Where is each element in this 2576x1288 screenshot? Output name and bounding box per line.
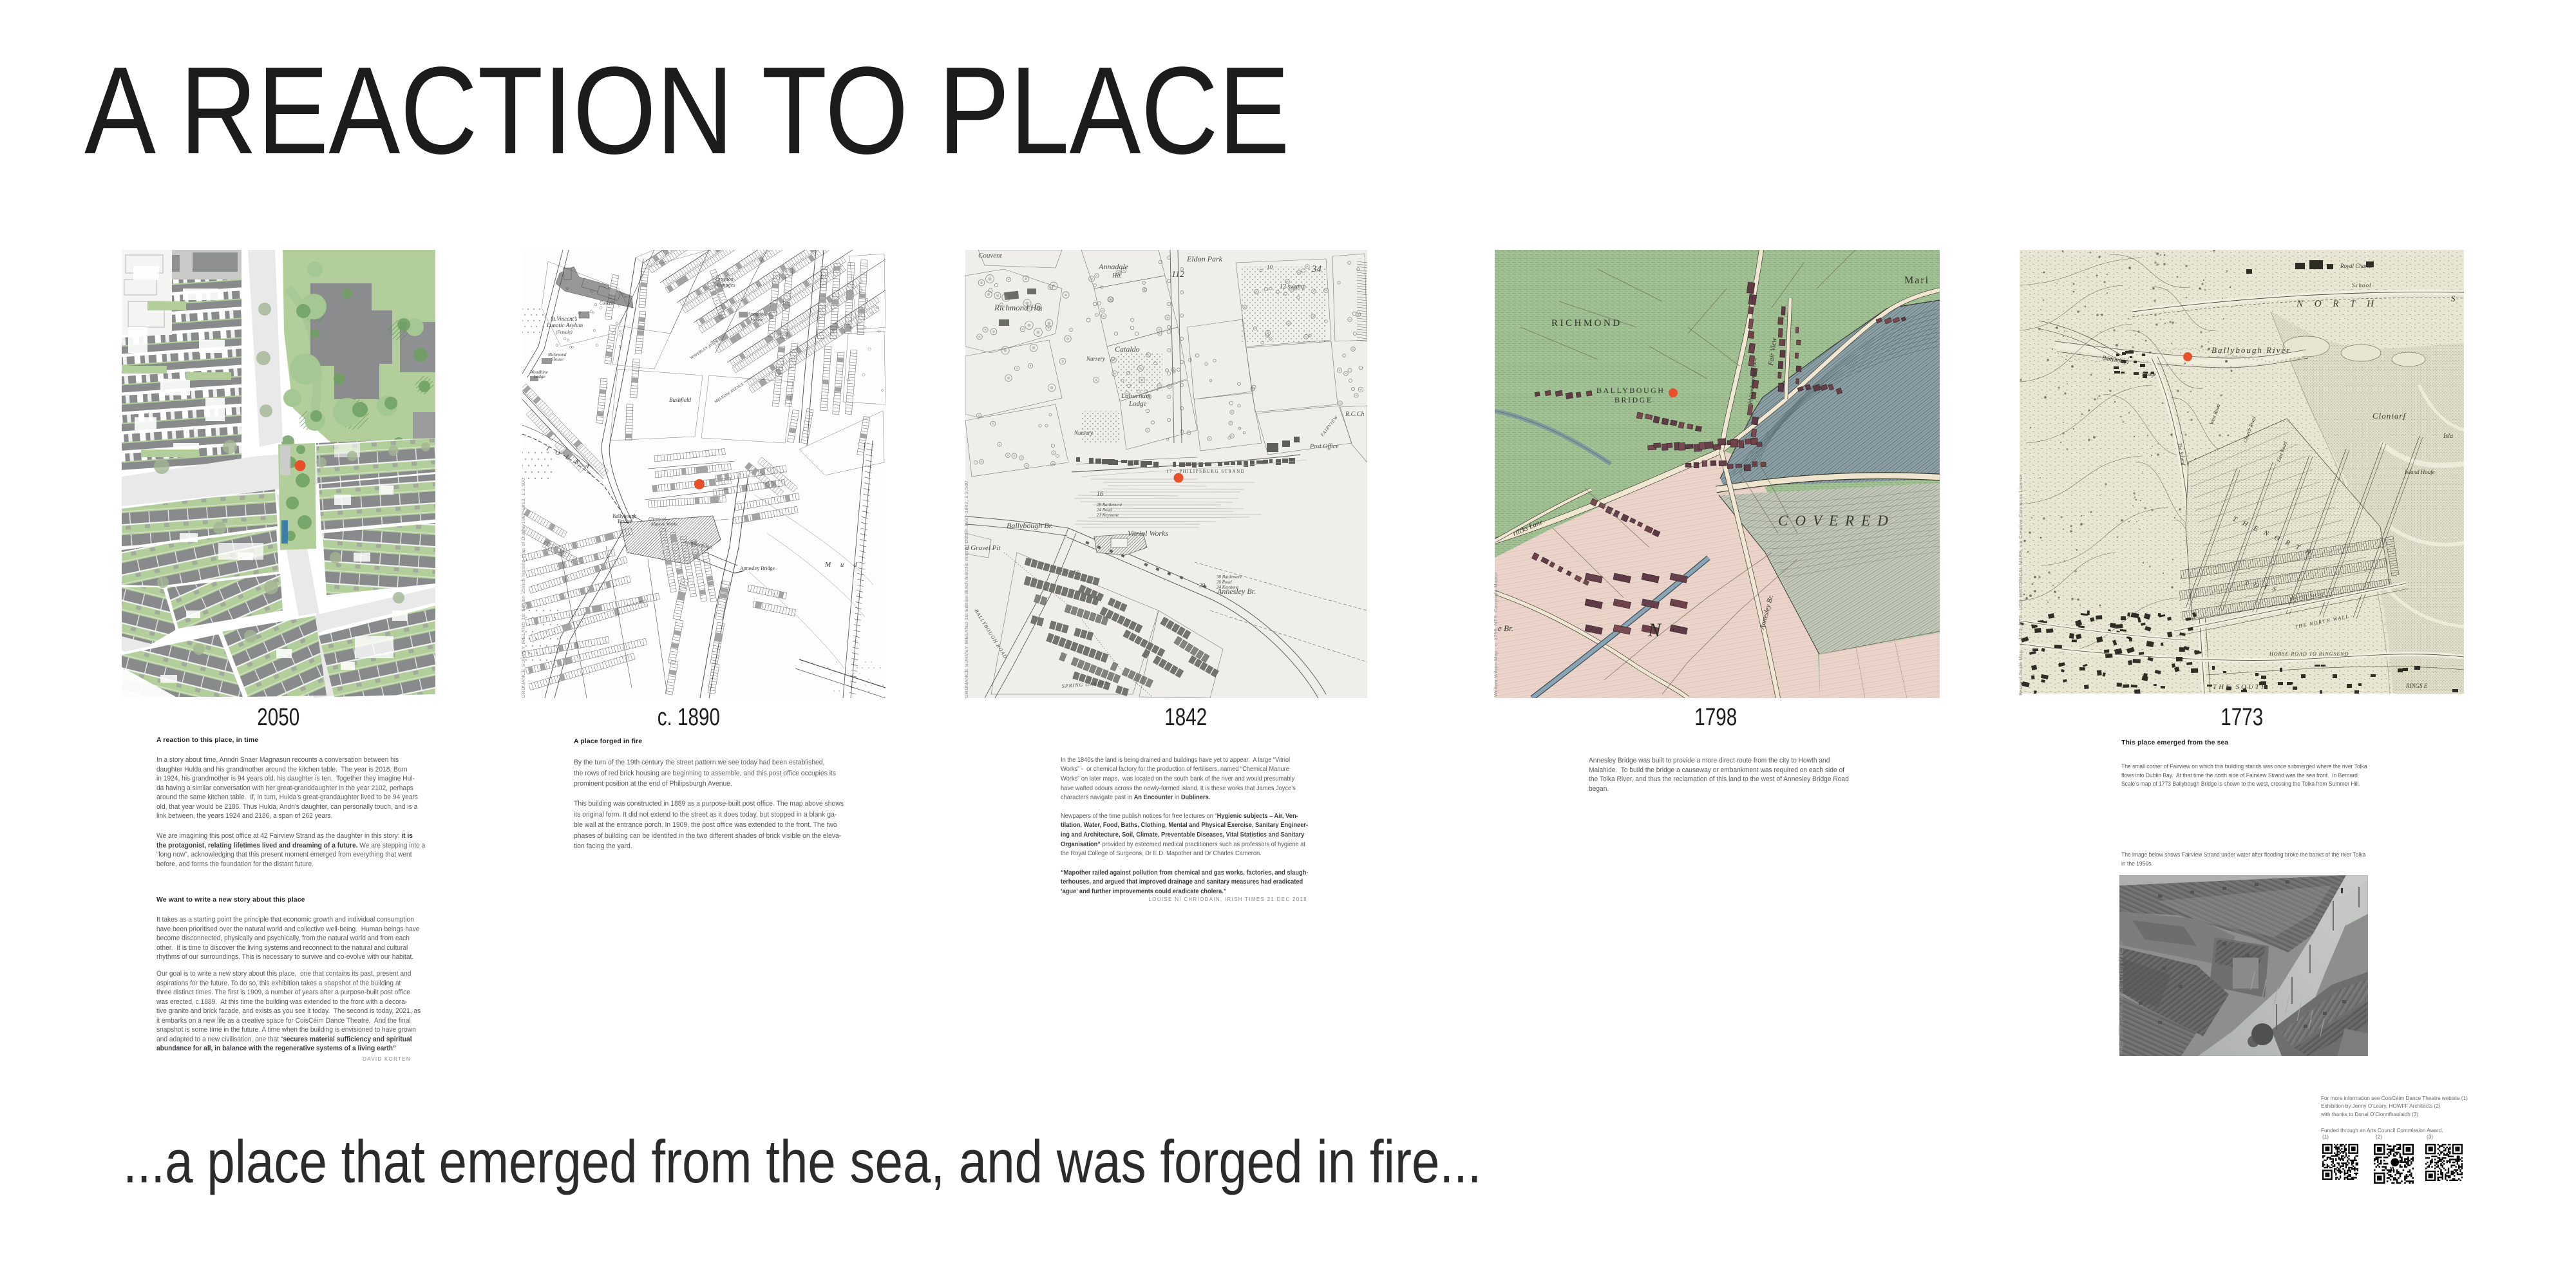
svg-text:d Gravel Pit: d Gravel Pit [965, 544, 1001, 552]
svg-text:Ballybough River: Ballybough River [2211, 345, 2291, 355]
svg-text:20: 20 [1199, 582, 1206, 589]
svg-text:Bushfield: Bushfield [669, 397, 691, 403]
svg-text:S: S [2451, 294, 2456, 303]
svg-text:30 Battlement: 30 Battlement [1216, 574, 1242, 580]
svg-text:24 Road: 24 Road [1097, 507, 1112, 513]
svg-text:112: 112 [1171, 270, 1184, 279]
svg-text:M u d: M u d [824, 561, 861, 569]
svg-text:12 swamp: 12 swamp [1280, 283, 1305, 290]
svg-text:THE SOUTH: THE SOUTH [2213, 683, 2268, 691]
svg-text:Annesley Br.: Annesley Br. [1217, 587, 1256, 596]
svg-text:Lodge: Lodge [1128, 400, 1147, 408]
svg-text:Ho.: Ho. [1112, 272, 1122, 279]
svg-text:34: 34 [1311, 264, 1322, 274]
svg-text:Convent: Convent [600, 301, 615, 306]
svg-text:Richmond Ho.: Richmond Ho. [994, 303, 1043, 312]
svg-text:Island Houfe: Island Houfe [2404, 469, 2435, 475]
svg-text:20: 20 [1074, 569, 1080, 576]
svg-text:Nursery: Nursery [1074, 430, 1093, 436]
svg-text:St.Vincent’s: St.Vincent’s [551, 316, 578, 322]
svg-text:N: N [1647, 620, 1662, 641]
svg-text:HORSE ROAD TO RINGSEND: HORSE ROAD TO RINGSEND [2269, 651, 2349, 657]
svg-text:BRIDGE: BRIDGE [1615, 395, 1653, 404]
svg-text:Clontarf: Clontarf [2372, 411, 2407, 421]
svg-text:BALLYBOUGH: BALLYBOUGH [1596, 386, 1665, 395]
svg-text:RINGS E: RINGS E [2405, 683, 2428, 689]
svg-text:Ballybough Br.: Ballybough Br. [1007, 521, 1053, 530]
svg-text:Nursery: Nursery [1086, 355, 1105, 362]
svg-text:Royal Charter: Royal Charter [2340, 263, 2374, 269]
svg-text:N O R T H: N O R T H [2296, 299, 2378, 309]
svg-text:Couvent: Couvent [978, 252, 1003, 260]
svg-text:e Br.: e Br. [1498, 623, 1513, 633]
svg-text:Vitriol Works: Vitriol Works [1128, 529, 1168, 538]
svg-text:Bridge: Bridge [618, 518, 632, 524]
svg-text:Mari: Mari [1904, 275, 1929, 286]
svg-text:26 Road: 26 Road [1217, 580, 1232, 585]
svg-text:16: 16 [1097, 491, 1103, 498]
svg-text:Cataldo: Cataldo [1115, 345, 1140, 354]
svg-text:21 Keystone: 21 Keystone [1097, 513, 1119, 518]
svg-text:COVERED: COVERED [1778, 513, 1895, 529]
svg-text:Bridge: Bridge [2142, 372, 2156, 377]
svg-text:School: School [2352, 282, 2372, 289]
svg-text:Lunatic Asylum: Lunatic Asylum [546, 322, 583, 328]
svg-text:(Female): (Female) [556, 330, 573, 335]
svg-text:Post Office: Post Office [1309, 443, 1339, 450]
svg-text:Manure Works: Manure Works [650, 522, 677, 527]
svg-text:Croydon: Croydon [715, 276, 734, 282]
svg-text:Eldon Park: Eldon Park [1186, 254, 1223, 263]
svg-text:Annadale: Annadale [747, 311, 768, 317]
svg-text:Laburnum: Laburnum [1121, 392, 1151, 400]
svg-text:House: House [750, 317, 764, 323]
svg-text:Lodge: Lodge [533, 374, 545, 379]
svg-text:Isla: Isla [2443, 433, 2453, 440]
svg-text:RICHMOND: RICHMOND [1551, 318, 1622, 328]
svg-text:Annadale: Annadale [1098, 262, 1129, 271]
svg-text:Annesley Bridge: Annesley Bridge [740, 565, 775, 571]
svg-text:Chemical: Chemical [649, 516, 666, 522]
svg-text:10: 10 [1267, 264, 1273, 270]
svg-text:R.C.Ch: R.C.Ch [1345, 411, 1364, 418]
svg-text:Cottages: Cottages [717, 282, 735, 288]
svg-text:28 Battlement: 28 Battlement [1097, 502, 1122, 507]
svg-text:House: House [551, 357, 563, 362]
